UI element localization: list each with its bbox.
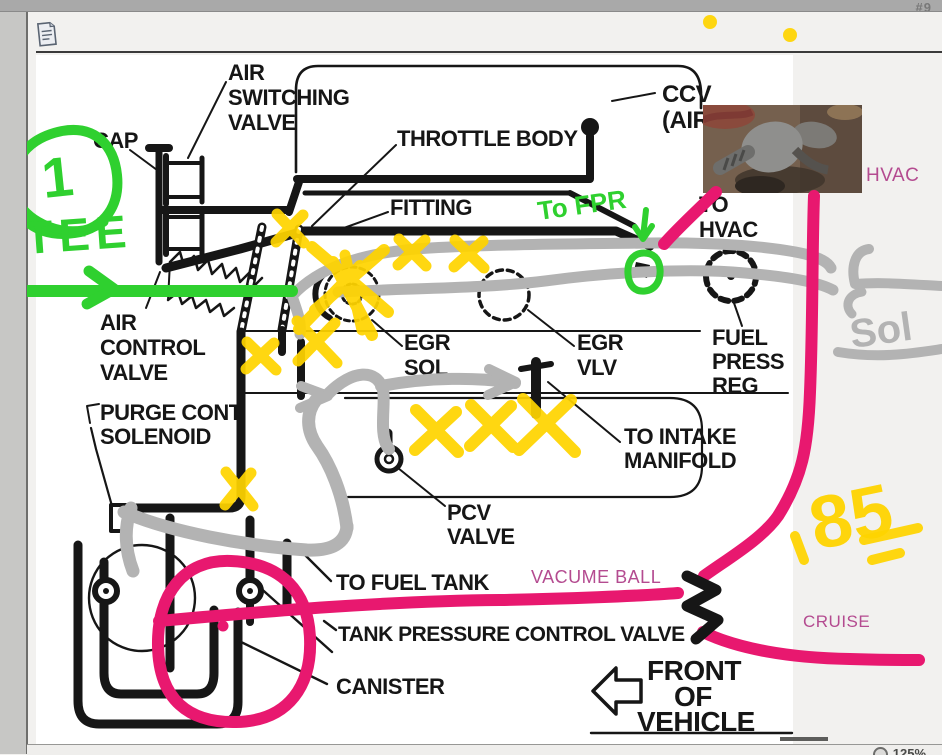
label-to-fuel-tank: TO FUEL TANK bbox=[336, 570, 490, 595]
scrollbar-thumb[interactable] bbox=[780, 737, 828, 741]
green-one-text: 1 bbox=[39, 144, 77, 210]
gray-sol-text: Sol bbox=[847, 305, 915, 357]
label-purge-1: PURGE CONT bbox=[100, 400, 243, 425]
image-viewer-window: { "chrome": { "top_right_text": "#9", "z… bbox=[0, 0, 942, 754]
label-air-switching-2: SWITCHING bbox=[228, 85, 349, 110]
label-canister: CANISTER bbox=[336, 674, 445, 699]
yellow-dot-2 bbox=[783, 28, 797, 42]
label-fitting: FITTING bbox=[390, 195, 472, 220]
left-panel-strip bbox=[0, 12, 28, 754]
label-tank-pressure: TANK PRESSURE CONTROL VALVE bbox=[338, 623, 685, 646]
label-fpr-2: PRESS bbox=[712, 349, 784, 374]
pink-hvac-caption: HVAC bbox=[866, 165, 919, 186]
label-intake-2: MANIFOLD bbox=[624, 448, 736, 473]
pink-dot bbox=[218, 621, 229, 632]
label-air-switching-3: VALVE bbox=[228, 110, 296, 135]
label-egr-vlv-2: VLV bbox=[577, 355, 617, 380]
status-bar: 125% bbox=[27, 744, 942, 755]
vacuum-diagram: CAP AIR SWITCHING VALVE THROTTLE BODY CC… bbox=[27, 11, 942, 754]
yellow-dot-1 bbox=[703, 15, 717, 29]
label-purge-2: SOLENOID bbox=[100, 424, 211, 449]
label-fpr-1: FUEL bbox=[712, 325, 768, 350]
pink-vacume-ball-caption: VACUME BALL bbox=[531, 567, 661, 587]
label-air-control-3: VALVE bbox=[100, 360, 168, 385]
label-intake-1: TO INTAKE bbox=[624, 424, 736, 449]
label-air-switching-1: AIR bbox=[228, 60, 265, 85]
yellow-85-text: 85 bbox=[802, 467, 900, 565]
green-tee-text: TEE bbox=[27, 205, 134, 264]
photo-inset bbox=[695, 101, 863, 196]
label-ccv-2: (AIR bbox=[662, 107, 709, 134]
label-pcv-1: PCV bbox=[447, 500, 492, 525]
label-air-control-1: AIR bbox=[100, 310, 137, 335]
label-air-control-2: CONTROL bbox=[100, 335, 205, 360]
label-vehicle: VEHICLE bbox=[637, 706, 755, 737]
label-pcv-2: VALVE bbox=[447, 524, 515, 549]
label-ccv-1: CCV bbox=[662, 81, 712, 108]
label-throttle-body: THROTTLE BODY bbox=[397, 126, 578, 151]
label-egr-sol-1: EGR bbox=[404, 330, 451, 355]
pink-cruise-caption: CRUISE bbox=[803, 612, 870, 631]
label-egr-vlv-1: EGR bbox=[577, 330, 624, 355]
label-fpr-3: REG bbox=[712, 373, 758, 398]
